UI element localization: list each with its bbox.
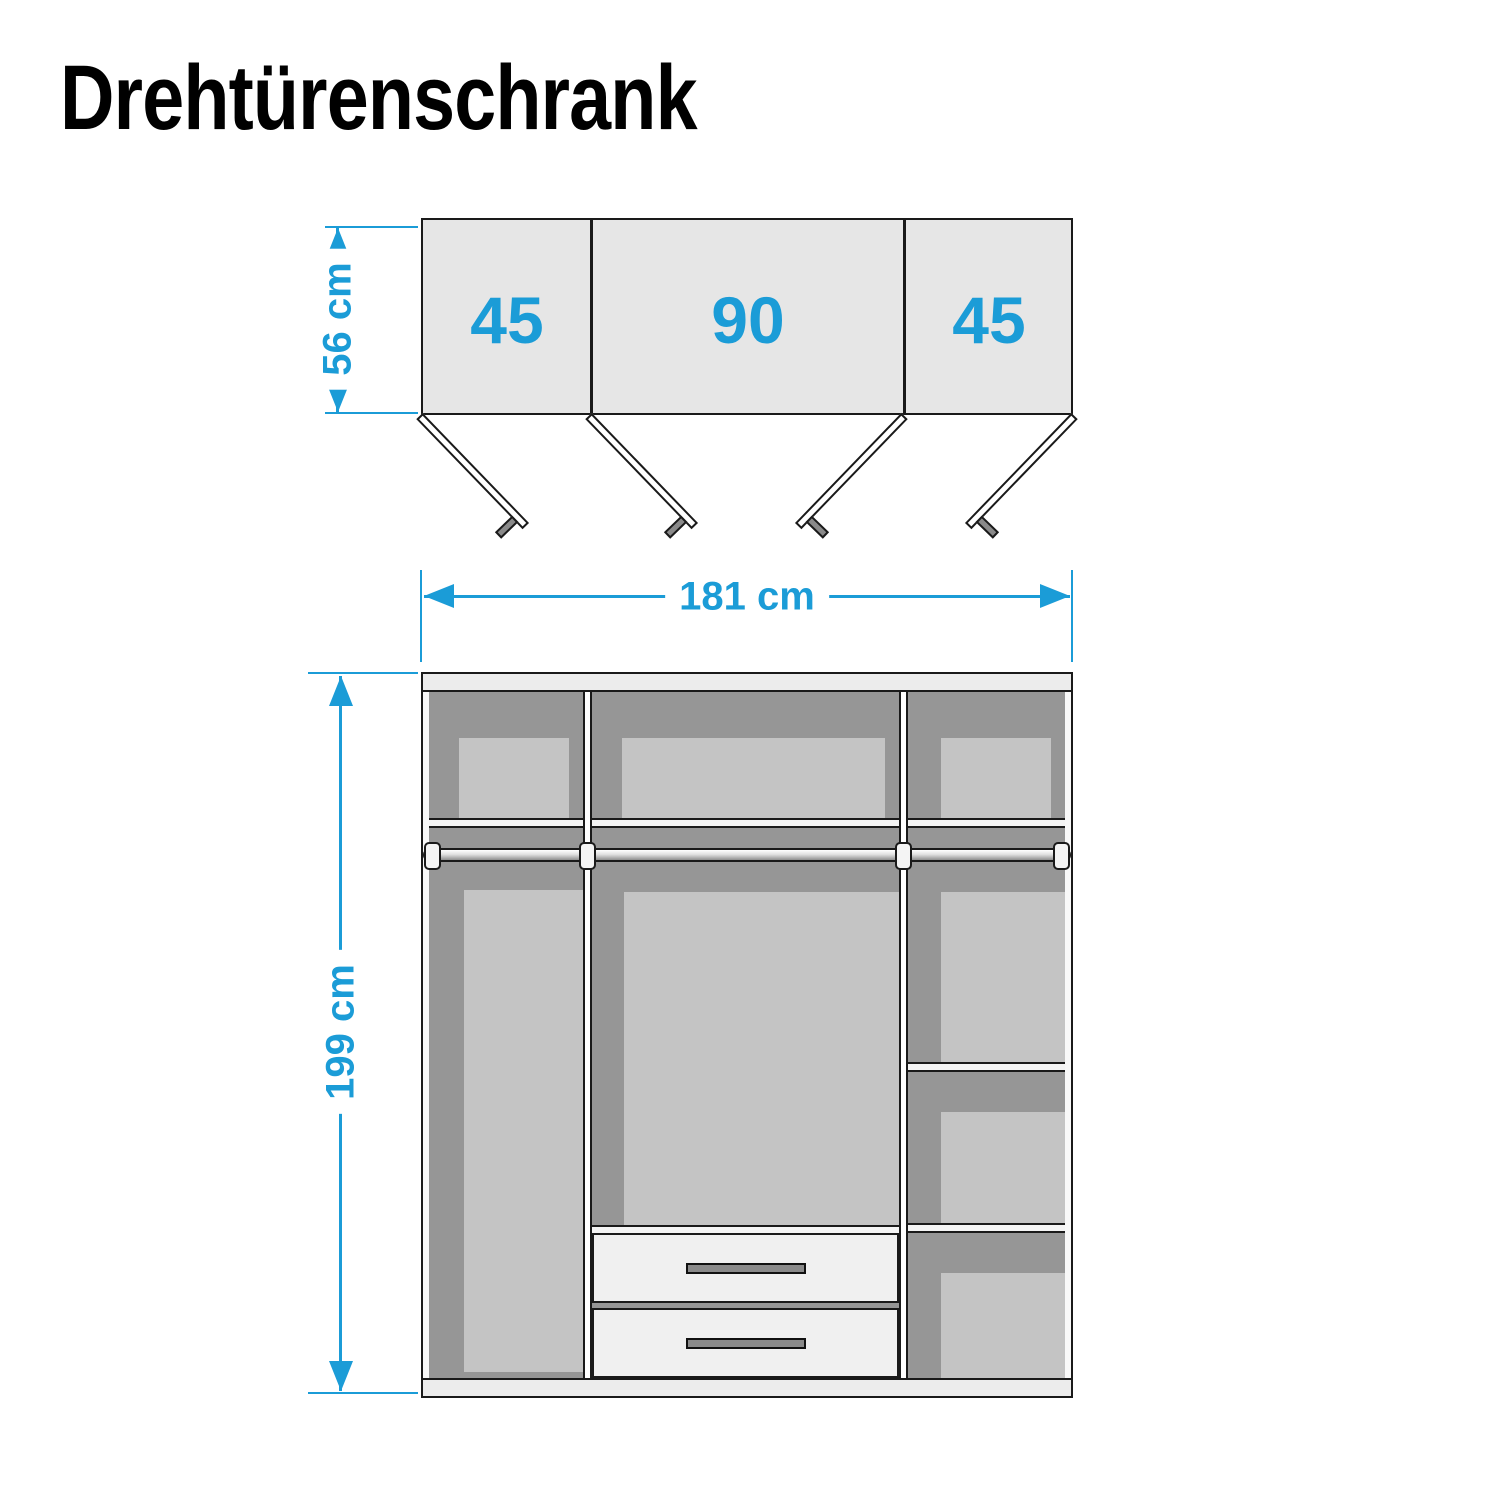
hanging-space-middle <box>624 892 899 1225</box>
up-arrow-icon <box>329 676 353 706</box>
wardrobe-top-outline: 45 90 45 <box>421 218 1073 415</box>
height-label: 199 cm <box>317 950 366 1114</box>
column-divider <box>899 692 908 1378</box>
drawer <box>592 1233 899 1303</box>
door-panel <box>965 413 1078 529</box>
right-shelf <box>908 1223 1065 1233</box>
door-handle <box>495 516 519 539</box>
base-panel <box>423 1378 1071 1396</box>
section-width-label: 90 <box>711 282 784 358</box>
wardrobe-interior <box>429 692 1065 1378</box>
top-compartment-shading <box>622 738 885 818</box>
door-handle <box>806 516 830 539</box>
door-panel <box>585 413 698 529</box>
right-compartment-shading <box>941 1273 1065 1378</box>
right-compartment-shading <box>941 1112 1065 1223</box>
hanging-space-left <box>464 890 583 1372</box>
door-handle <box>664 516 688 539</box>
rail-end-cap <box>579 842 596 870</box>
right-side-panel <box>1064 692 1071 1378</box>
clothes-rail <box>586 848 905 862</box>
right-arrow-icon <box>1040 584 1070 608</box>
section-width-label: 45 <box>470 282 543 358</box>
width-label: 181 cm <box>665 573 829 622</box>
diagram-canvas: Drehtürenschrank 56 cm 45 90 45 <box>0 0 1500 1500</box>
rail-end-cap <box>424 842 441 870</box>
door-panel <box>795 413 908 529</box>
drawer <box>592 1308 899 1378</box>
extension-line <box>308 1392 418 1394</box>
extension-line <box>1071 570 1073 662</box>
top-shelf <box>908 818 1065 828</box>
door-panel <box>416 413 529 529</box>
left-arrow-icon <box>424 584 454 608</box>
top-panel <box>423 674 1071 692</box>
section-divider <box>903 220 906 413</box>
down-arrow-icon <box>329 1361 353 1391</box>
top-shelf <box>429 818 583 828</box>
top-compartment-shading <box>941 738 1051 818</box>
front-view <box>421 672 1073 1398</box>
depth-label: 56 cm <box>314 248 363 389</box>
extension-line <box>308 672 418 674</box>
drawer-handle <box>686 1338 806 1349</box>
rail-end-cap <box>1053 842 1070 870</box>
column-divider <box>583 692 592 1378</box>
top-compartment-shading <box>459 738 569 818</box>
extension-line <box>420 570 422 662</box>
section-width-label: 45 <box>952 282 1025 358</box>
drawer-handle <box>686 1263 806 1274</box>
top-shelf <box>592 818 899 828</box>
section-divider <box>590 220 593 413</box>
door-handle <box>976 516 1000 539</box>
rail-end-cap <box>895 842 912 870</box>
clothes-rail <box>423 848 589 862</box>
clothes-rail <box>902 848 1071 862</box>
page-title: Drehtürenschrank <box>60 50 697 147</box>
right-shelf <box>908 1062 1065 1072</box>
hanging-space-right <box>941 892 1065 1062</box>
